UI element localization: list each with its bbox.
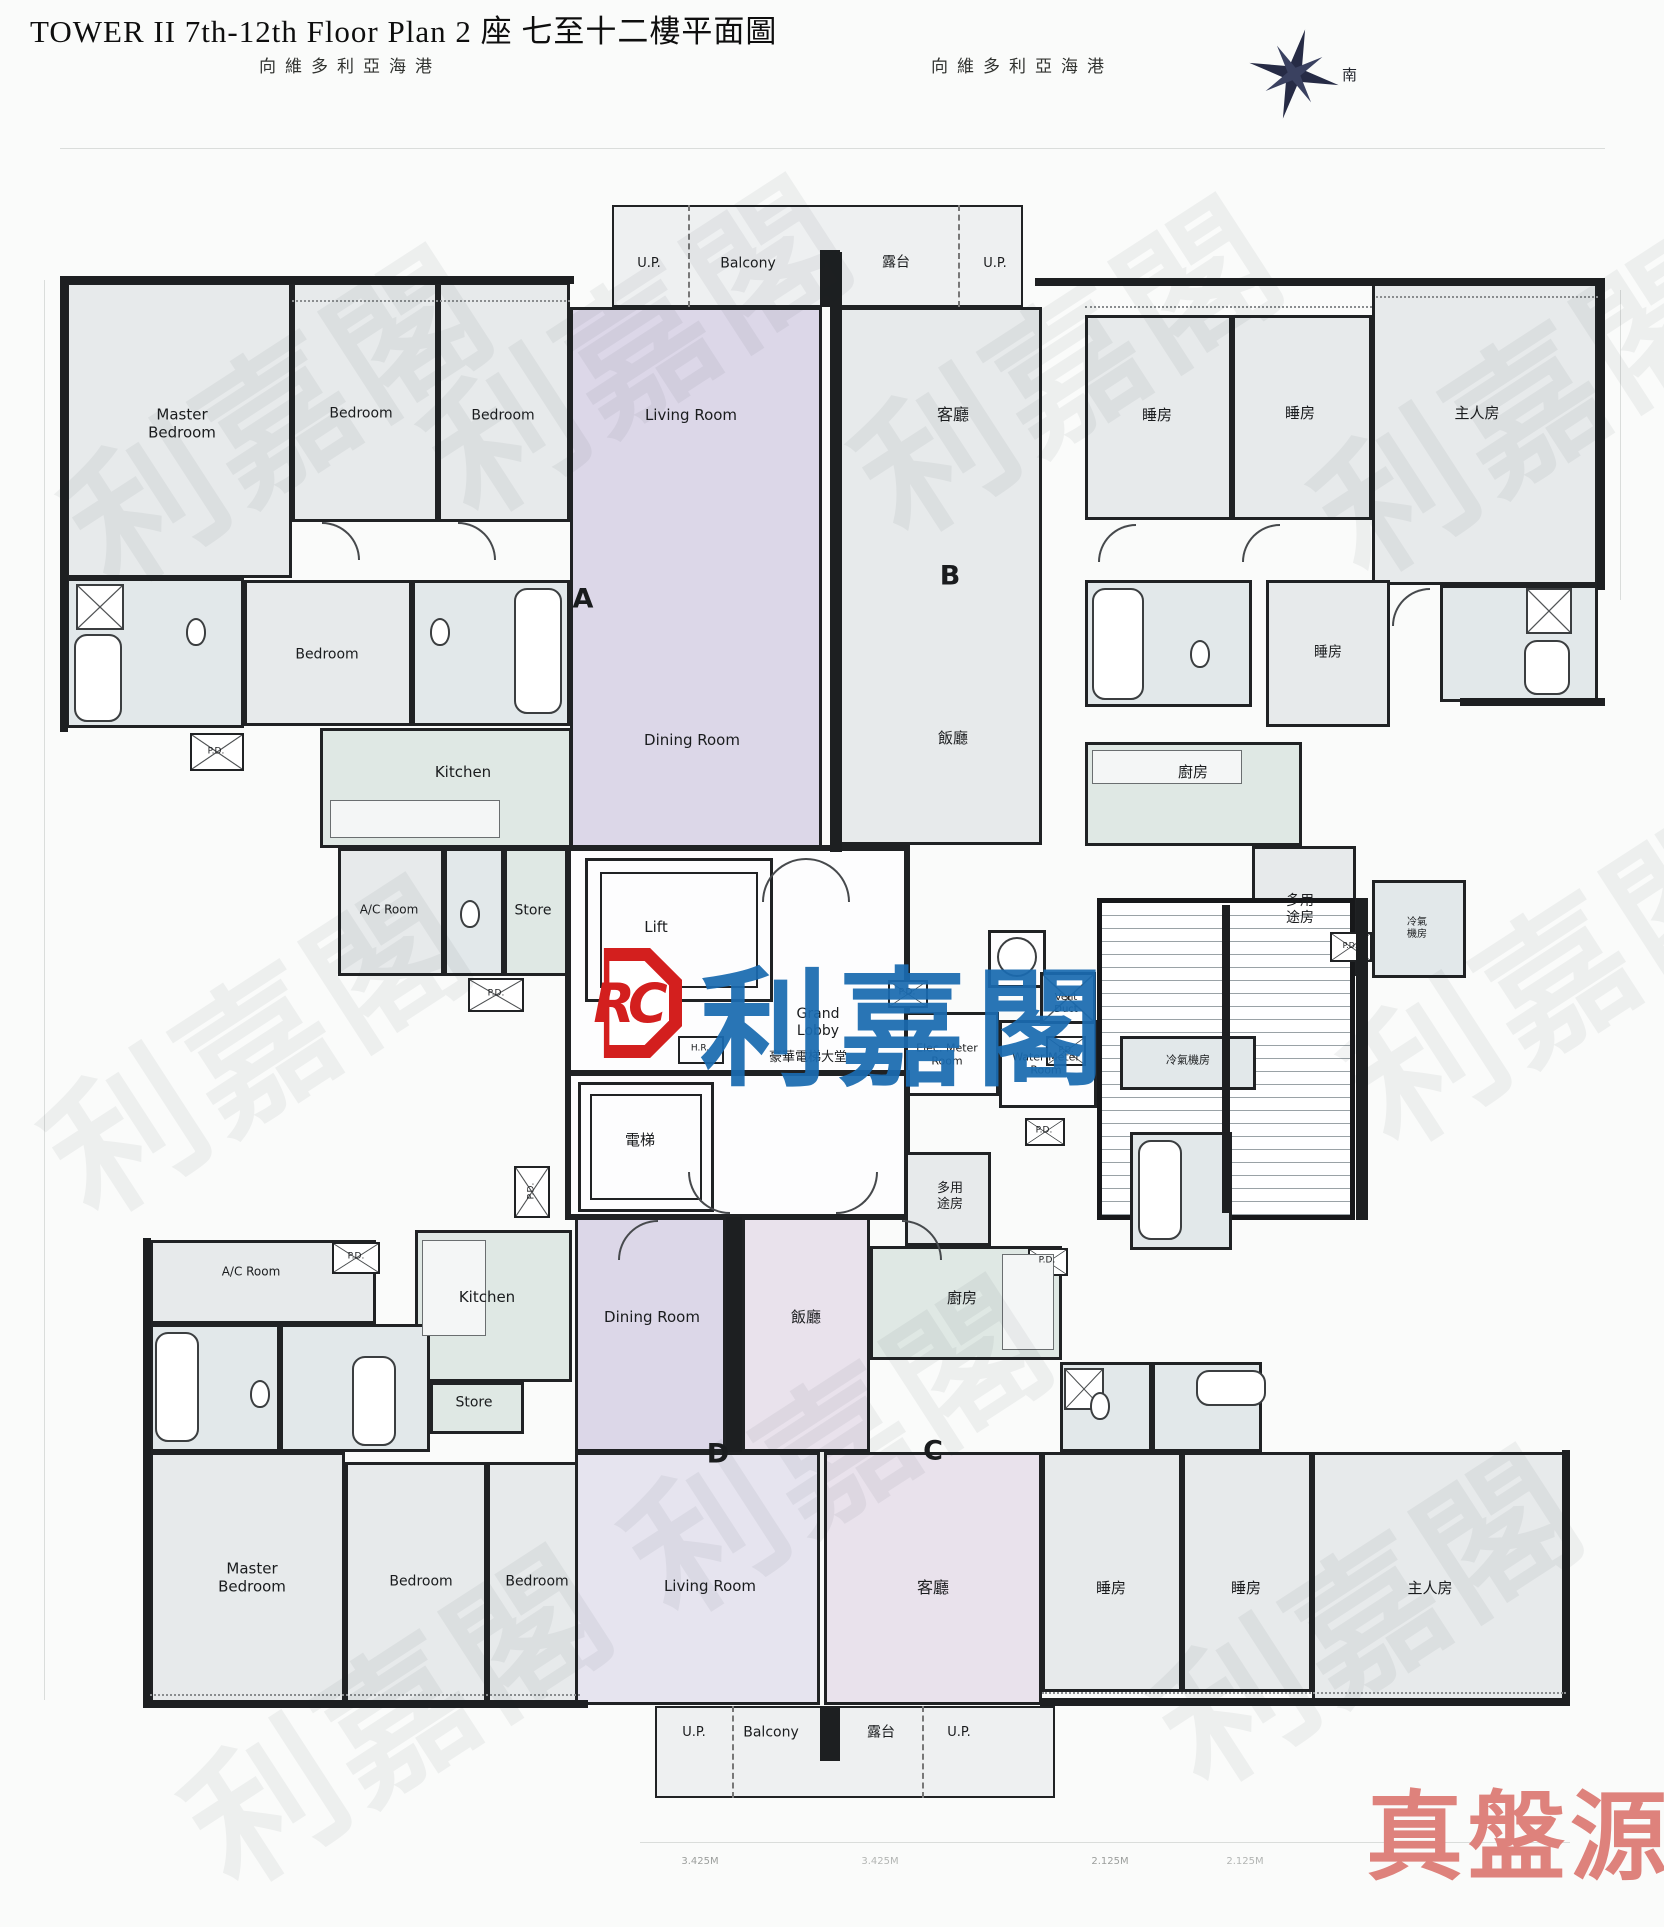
area-master-bedroom-b bbox=[1372, 283, 1598, 585]
balcony-divider bbox=[958, 205, 960, 307]
kitchen-c: 廚房 bbox=[947, 1289, 977, 1307]
ac-plant-b: 冷氣 機房 bbox=[1407, 917, 1427, 941]
bathtub-fixture bbox=[1524, 640, 1570, 695]
pd-core-b1: P.D. bbox=[1036, 1126, 1053, 1137]
outer-wall bbox=[1035, 278, 1605, 286]
outer-wall bbox=[60, 276, 574, 284]
door-arc bbox=[1098, 524, 1136, 562]
ac-plant-c: 冷氣機房 bbox=[1166, 1053, 1210, 1066]
master-bedroom-b: 主人房 bbox=[1454, 404, 1499, 422]
bedroom-a-top-2: Bedroom bbox=[471, 407, 534, 424]
pd-core-b2: P.D. bbox=[1039, 1256, 1056, 1267]
floor-plan: TOWER II 7th-12th Floor Plan 2 座 七至十二樓平面… bbox=[0, 0, 1664, 1880]
toilet-fixture bbox=[430, 618, 450, 646]
window-line bbox=[1085, 306, 1372, 308]
pd-d-1: P.D. bbox=[348, 1252, 365, 1263]
pd-d-2: P.D. bbox=[527, 1183, 538, 1200]
window-line bbox=[292, 300, 570, 302]
door-arc bbox=[458, 522, 496, 560]
living-room-c: 客廳 bbox=[917, 1578, 949, 1598]
outer-wall bbox=[1562, 1450, 1570, 1706]
unit-a-letter: A bbox=[573, 584, 594, 617]
bedroom-c-1: 睡房 bbox=[1096, 1579, 1126, 1597]
dim-line-left bbox=[44, 280, 45, 1700]
master-bedroom-a: Master Bedroom bbox=[148, 406, 216, 443]
kitchen-d: Kitchen bbox=[459, 1288, 515, 1306]
toilet-fixture bbox=[460, 900, 480, 928]
dining-room-c: 飯廳 bbox=[791, 1308, 821, 1326]
bedroom-d-1: Bedroom bbox=[389, 1573, 452, 1590]
page-title: TOWER II 7th-12th Floor Plan 2 座 七至十二樓平面… bbox=[30, 6, 777, 51]
terrace-bottom: 露台 bbox=[867, 1724, 895, 1741]
outer-wall bbox=[143, 1700, 588, 1708]
outer-wall bbox=[1460, 698, 1605, 706]
unit-c-letter: C bbox=[923, 1436, 943, 1469]
master-bedroom-d: Master Bedroom bbox=[218, 1560, 286, 1597]
area-balcony-top bbox=[612, 205, 1023, 307]
living-room-a: Living Room bbox=[645, 406, 737, 424]
footer-watermark: 真盤源 bbox=[1366, 1758, 1664, 1899]
unit-d-letter: D bbox=[707, 1439, 729, 1472]
party-wall bbox=[820, 1706, 840, 1761]
harbour-label-right: 向維多利亞海港 bbox=[931, 52, 1113, 77]
outer-wall bbox=[143, 1238, 151, 1708]
kitchen-a: Kitchen bbox=[435, 763, 491, 781]
pd-a-1: P.D. bbox=[208, 747, 225, 758]
bathtub-fixture bbox=[352, 1356, 396, 1446]
balcony-bottom: Balcony bbox=[743, 1724, 799, 1741]
area-bedroom-c1 bbox=[1042, 1452, 1182, 1692]
door-arc bbox=[1392, 588, 1430, 626]
party-wall bbox=[726, 1217, 742, 1452]
balcony-top: Balcony bbox=[720, 255, 776, 272]
bedroom-b-1: 睡房 bbox=[1142, 406, 1172, 424]
lift-top: Lift bbox=[644, 918, 667, 936]
area-dining-room-c bbox=[742, 1217, 870, 1452]
window-line bbox=[1376, 296, 1598, 298]
bedroom-b-2: 睡房 bbox=[1285, 404, 1315, 422]
master-bedroom-c: 主人房 bbox=[1407, 1579, 1452, 1597]
dim-bottom-4: 2.125M bbox=[1226, 1856, 1263, 1868]
door-arc bbox=[322, 522, 360, 560]
agency-name-watermark: 利嘉閣 bbox=[700, 926, 1114, 1111]
bedroom-c-2: 睡房 bbox=[1231, 1579, 1261, 1597]
kitchen-counter bbox=[1002, 1254, 1054, 1350]
dining-room-b: 飯廳 bbox=[938, 729, 968, 747]
terrace-top: 露台 bbox=[882, 254, 910, 271]
bathtub-fixture bbox=[514, 588, 562, 714]
dim-bottom-1: 3.425M bbox=[681, 1856, 718, 1868]
core-wall bbox=[1356, 898, 1368, 1220]
shower-fixture bbox=[76, 584, 124, 630]
bathtub-fixture bbox=[155, 1332, 199, 1442]
outer-wall bbox=[1597, 278, 1605, 590]
toilet-fixture bbox=[186, 618, 206, 646]
party-wall-ab bbox=[830, 252, 842, 852]
store-a: Store bbox=[514, 902, 551, 919]
ac-room-d: A/C Room bbox=[222, 1265, 281, 1280]
compass-icon bbox=[1238, 18, 1350, 130]
kitchen-counter bbox=[1092, 750, 1242, 784]
pd-b: P.D. bbox=[1343, 941, 1358, 951]
kitchen-counter bbox=[330, 800, 500, 838]
stair-divider bbox=[1222, 905, 1230, 1213]
outer-wall bbox=[1040, 1698, 1570, 1706]
window-line bbox=[150, 1694, 580, 1696]
bathtub-fixture bbox=[1092, 588, 1144, 700]
compass-south-label: 南 bbox=[1342, 64, 1357, 85]
up-top-right: U.P. bbox=[983, 256, 1007, 272]
ac-room-a: A/C Room bbox=[360, 903, 419, 918]
toilet-fixture bbox=[250, 1380, 270, 1408]
dim-bottom-2: 3.425M bbox=[861, 1856, 898, 1868]
area-living-dining-a bbox=[570, 307, 822, 855]
bathtub-fixture bbox=[1138, 1140, 1182, 1240]
door-arc bbox=[1242, 524, 1280, 562]
up-top-left: U.P. bbox=[637, 256, 661, 272]
bedroom-d-2: Bedroom bbox=[505, 1573, 568, 1590]
dim-bottom-3: 2.125M bbox=[1091, 1856, 1128, 1868]
up-bottom-left: U.P. bbox=[682, 1725, 706, 1741]
up-bottom-right: U.P. bbox=[947, 1725, 971, 1741]
store-d: Store bbox=[455, 1394, 492, 1411]
bathtub-fixture bbox=[1196, 1370, 1266, 1406]
toilet-fixture bbox=[1090, 1392, 1110, 1420]
dim-line-top bbox=[60, 148, 1605, 149]
bedroom-a-top-1: Bedroom bbox=[329, 405, 392, 422]
bathtub-fixture bbox=[74, 634, 122, 722]
pd-a-2: P.D. bbox=[488, 989, 505, 1000]
multi-room-c: 多用 途房 bbox=[937, 1181, 963, 1213]
dining-room-d: Dining Room bbox=[604, 1308, 700, 1326]
balcony-divider bbox=[922, 1706, 924, 1798]
area-shower-room-b bbox=[1440, 585, 1598, 702]
bedroom-a-mid: Bedroom bbox=[295, 646, 358, 663]
dim-line-right bbox=[1620, 290, 1621, 600]
outer-wall bbox=[60, 560, 68, 732]
rc-logo: RC bbox=[572, 948, 682, 1058]
balcony-divider bbox=[688, 205, 690, 307]
toilet-fixture bbox=[1190, 640, 1210, 668]
shower-fixture bbox=[1526, 588, 1572, 634]
multi-room-b: 多用 途房 bbox=[1286, 893, 1314, 927]
lift-bottom: 電梯 bbox=[625, 1131, 655, 1149]
bedroom-b-mid: 睡房 bbox=[1314, 644, 1342, 661]
unit-b-letter: B bbox=[940, 561, 961, 594]
dining-room-a: Dining Room bbox=[644, 731, 740, 749]
rc-logo-letters: RC bbox=[572, 948, 682, 1058]
window-line bbox=[1042, 1692, 1566, 1694]
living-room-d: Living Room bbox=[664, 1577, 756, 1595]
harbour-label-left: 向維多利亞海港 bbox=[259, 52, 441, 77]
area-bedroom-c2 bbox=[1182, 1452, 1312, 1692]
area-bedroom-a1 bbox=[292, 282, 438, 522]
area-balcony-bottom bbox=[655, 1706, 1055, 1798]
living-room-b: 客廳 bbox=[937, 405, 969, 425]
balcony-divider bbox=[732, 1706, 734, 1798]
area-bedroom-a2 bbox=[438, 282, 570, 522]
kitchen-b: 廚房 bbox=[1178, 763, 1208, 781]
